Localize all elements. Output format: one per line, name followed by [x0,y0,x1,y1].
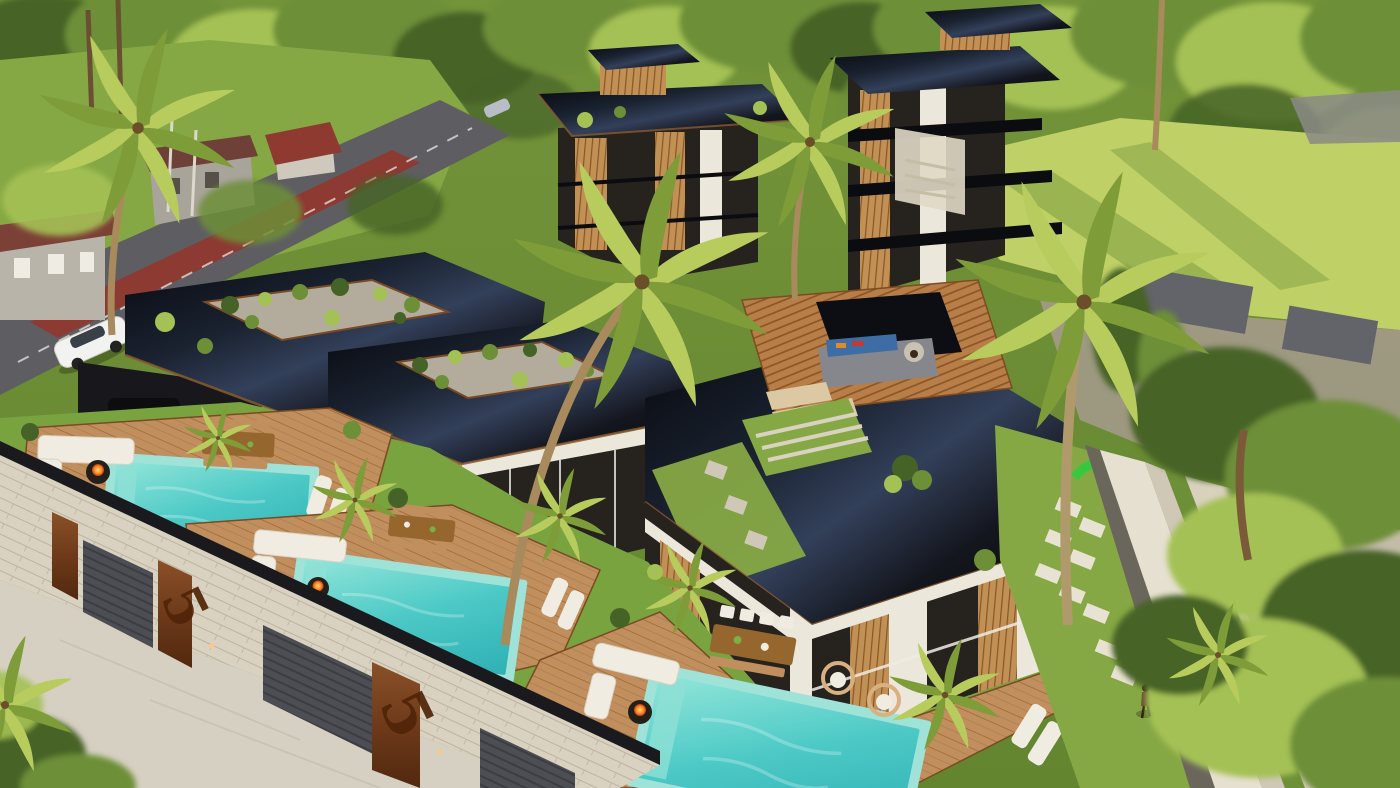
architectural-render: 5 5 [0,0,1400,788]
wall-lamp [210,644,215,649]
rear-street [1290,90,1400,144]
render-canvas: 5 5 [0,0,1400,788]
corten-panel [52,512,78,600]
entry-wall [895,128,965,215]
wall-lamp [438,750,443,755]
